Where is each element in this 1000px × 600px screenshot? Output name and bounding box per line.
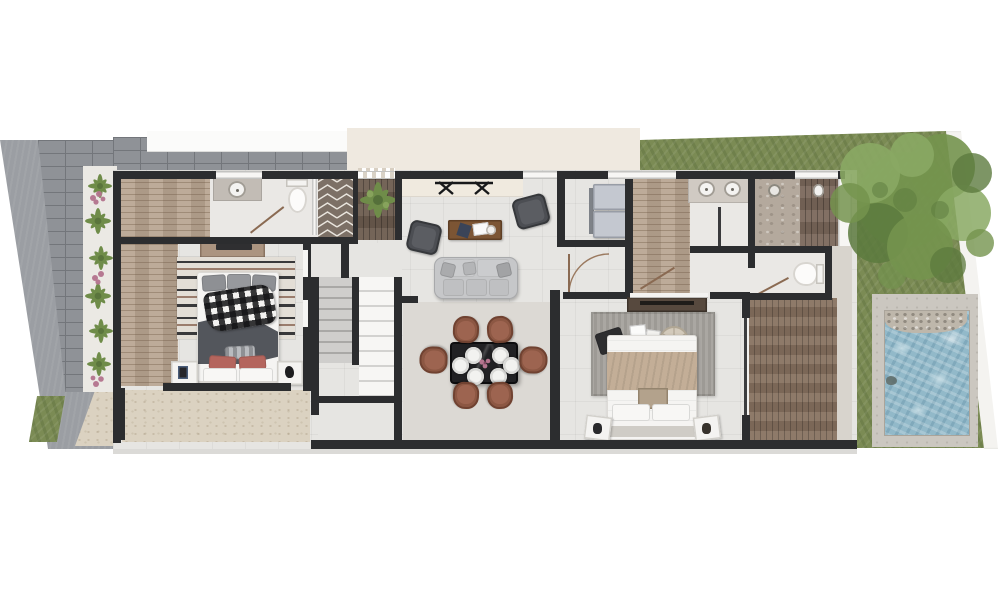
wall-bed1-south <box>163 383 291 391</box>
bath2-sink-right <box>724 181 741 197</box>
nightstand-decor <box>702 423 711 434</box>
planting-bed <box>83 166 117 392</box>
wall-under-stairs <box>318 396 400 403</box>
wall-living-east <box>557 171 565 241</box>
side-yard-strip <box>347 128 640 173</box>
wall-bath2-wc <box>690 246 752 253</box>
wall-pantry-south <box>557 240 633 247</box>
under-stair-room <box>318 403 394 440</box>
chair-seat <box>457 385 476 405</box>
nightstand-figurine <box>285 366 294 378</box>
chair-seat <box>456 321 475 341</box>
chevron-pattern <box>318 174 356 238</box>
armchair-seat <box>411 225 437 251</box>
wc-toilet-bowl <box>793 262 818 286</box>
bath2-sink-left <box>698 181 715 197</box>
wall-stairs-mid <box>352 277 359 365</box>
bath2-glass-partition <box>718 207 721 251</box>
sofa-pillow <box>462 261 477 276</box>
bed2-white-pillow <box>612 404 650 421</box>
window-living <box>523 171 557 179</box>
shower1-glass <box>312 177 317 235</box>
wall-entry-east <box>395 171 402 240</box>
dining-chair <box>452 315 479 343</box>
chair-seat <box>490 320 509 340</box>
entry-plant <box>356 178 400 222</box>
nightstand-decor <box>593 423 602 434</box>
front-terrace <box>122 390 310 442</box>
stair-landing <box>311 243 402 277</box>
dining-chair <box>519 346 548 374</box>
window-bath1 <box>216 171 262 179</box>
shower1-chevron-tiles <box>318 174 356 238</box>
table-centrepiece-flowers <box>477 356 493 372</box>
fridge-upper <box>593 184 628 210</box>
sofa-back-cushion <box>466 279 487 296</box>
wall-bed2-east-stub-top <box>742 292 750 318</box>
place-setting <box>503 357 520 374</box>
wall-living-dining-stub <box>394 296 418 303</box>
bath1-sink <box>228 181 246 198</box>
coffee-table-tray <box>486 225 496 235</box>
chair-seat <box>490 385 509 405</box>
stair-flight-down <box>319 277 353 363</box>
wall-closet2-west <box>625 171 633 297</box>
entry-walk-canopy <box>147 131 347 152</box>
bed1-tv <box>216 244 252 250</box>
closet2-floor <box>633 177 690 297</box>
nightstand-phone <box>178 366 188 379</box>
bath1-toilet-tank <box>286 179 308 187</box>
stair-flight-up <box>359 277 394 397</box>
bed2-headboard <box>604 426 700 437</box>
pool-rock <box>886 376 897 385</box>
sofa-back-cushion <box>443 279 464 296</box>
dining-chair <box>419 346 448 374</box>
place-setting <box>452 357 469 374</box>
closet1-floor-strip <box>121 239 178 386</box>
wall-bottom <box>311 440 857 449</box>
chair-seat <box>424 350 445 370</box>
wall-dining-east <box>550 290 560 448</box>
bed2-white-pillow <box>652 404 690 421</box>
bed2-glass-slider <box>744 318 747 415</box>
bed1-sliding-door-leaf <box>303 300 308 327</box>
bedroom2-door-swing <box>565 250 611 296</box>
fridge-lower <box>593 211 628 238</box>
sofa-back-cushion <box>489 279 509 296</box>
bed1-foot-cushion <box>201 274 226 292</box>
floor-plan-canvas <box>0 0 1000 600</box>
wall-bath1-bed1 <box>113 237 358 244</box>
planting-bed-plants <box>83 166 117 392</box>
wall-corridor-stub <box>341 240 349 278</box>
wall-wc-left <box>748 246 755 268</box>
closet1-floor <box>121 177 210 239</box>
window-bath2 <box>608 171 676 179</box>
dining-chair <box>486 315 514 344</box>
wall-entry-west <box>353 171 358 240</box>
chair-seat <box>522 350 543 370</box>
wall-bed2-north-west <box>563 292 627 299</box>
wall-terrace-left <box>119 388 125 440</box>
wall-bath2-shower <box>748 171 755 253</box>
wall-bed2-east-stub-bottom <box>742 415 750 443</box>
wall-stairs-west <box>311 277 319 415</box>
bed2-sliding-door-leaf <box>630 293 708 297</box>
shower2-rainhead <box>768 184 781 197</box>
console-bench <box>433 180 495 196</box>
rear-deck <box>748 298 837 440</box>
backyard-tree <box>820 115 1000 310</box>
bed2-beige-blanket <box>607 352 697 390</box>
armchair-seat <box>517 198 546 225</box>
bed1-sliding-door-leaf <box>303 250 308 277</box>
slab-edge-shadow <box>113 449 857 454</box>
bed2-console-bar <box>640 301 694 305</box>
entry-sliding-door <box>358 171 395 179</box>
